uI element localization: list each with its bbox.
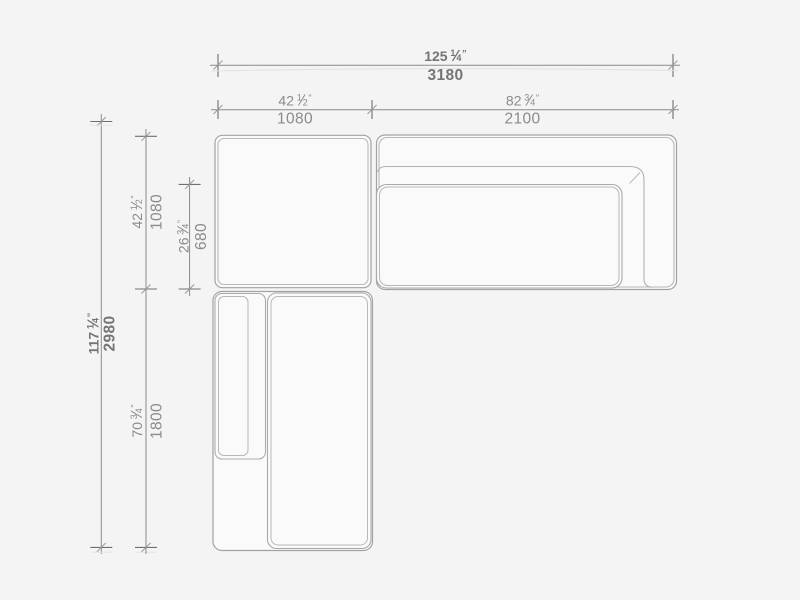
svg-text:1080: 1080 — [149, 194, 166, 230]
svg-text:3180: 3180 — [427, 67, 463, 84]
svg-text:1800: 1800 — [149, 403, 166, 439]
svg-text:680: 680 — [193, 223, 210, 250]
svg-text:1080: 1080 — [277, 111, 313, 128]
svg-text:2980: 2980 — [102, 315, 119, 351]
svg-text:2100: 2100 — [504, 111, 540, 128]
